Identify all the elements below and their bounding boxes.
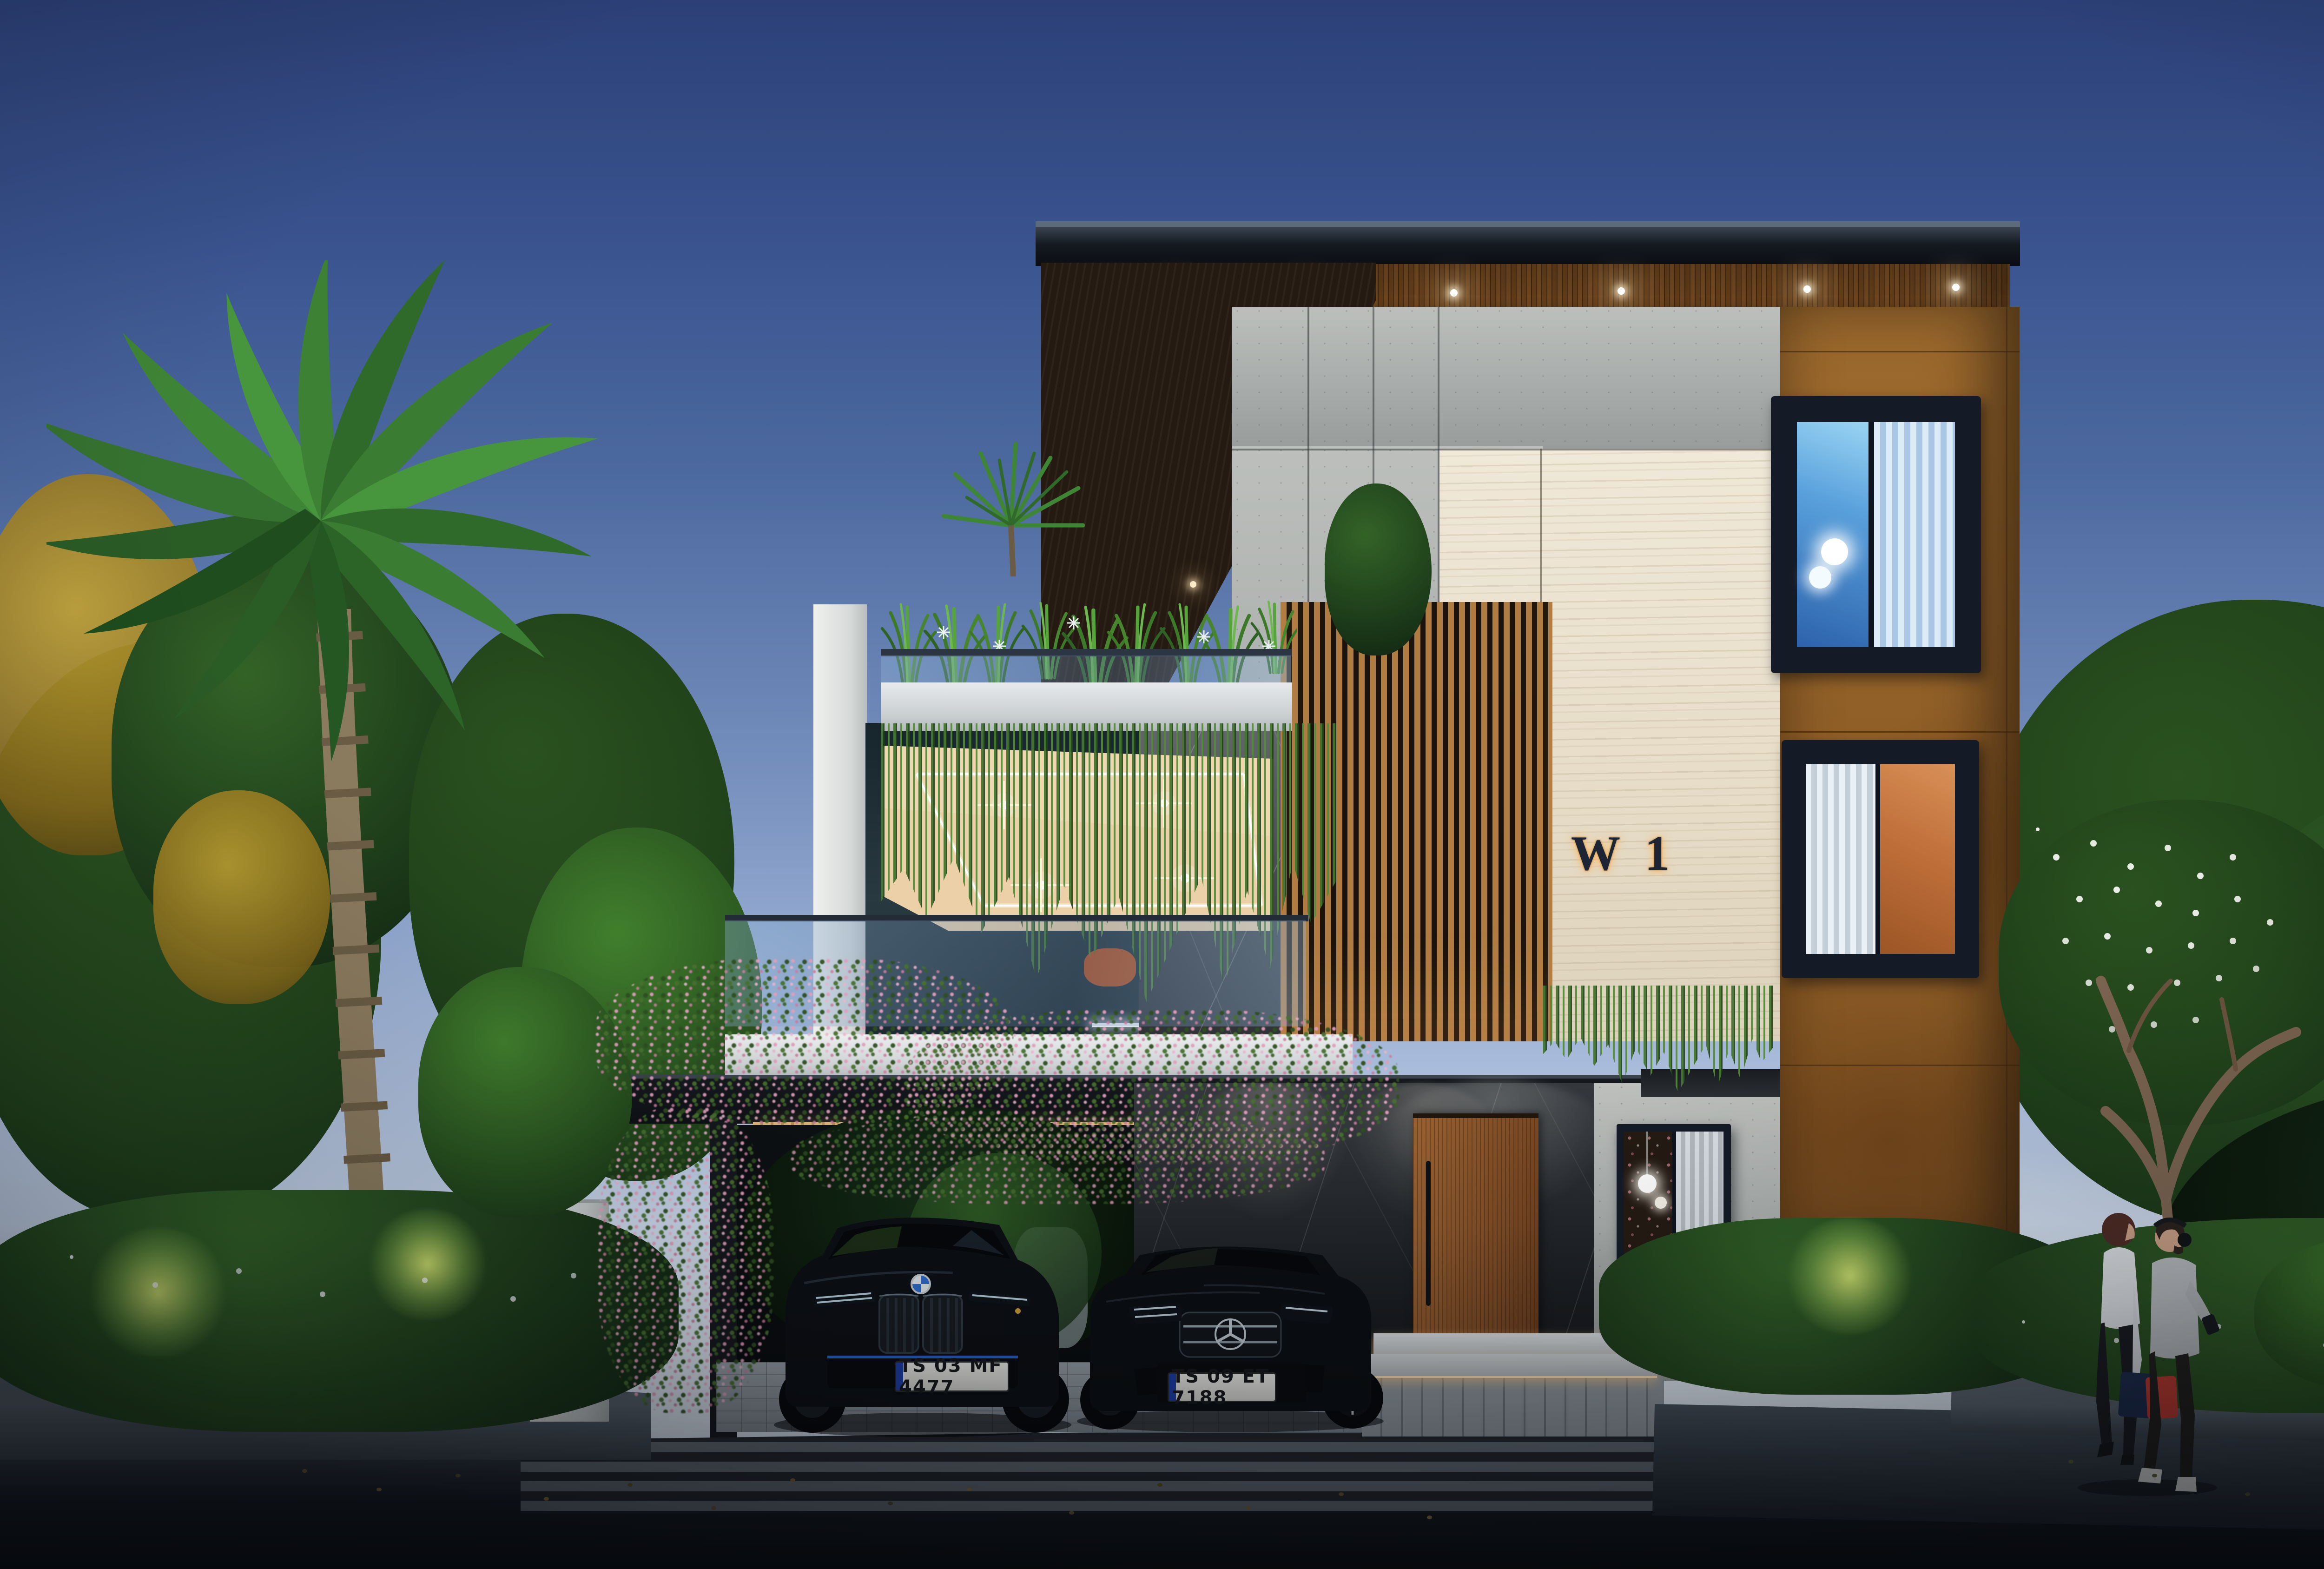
corten-seam: [2006, 307, 2007, 1283]
soffit-downlight: [1618, 287, 1625, 295]
slab-shadow-band: [1641, 1069, 1780, 1097]
pendant-light-orb: [1821, 538, 1848, 565]
climbing-flower-vine: [597, 1106, 774, 1413]
window-mullion: [1875, 764, 1880, 954]
pendant-cord: [1646, 1132, 1648, 1176]
house-number-sign: W 1: [1571, 825, 1757, 882]
garden-uplight-glow: [367, 1209, 488, 1320]
third-floor-window: [1771, 396, 1981, 673]
globe-pendant-light: [1655, 1197, 1667, 1209]
soffit-downlight: [1450, 289, 1458, 297]
entrance-walkway: [1362, 1371, 1664, 1437]
spider-lily-flowers: [70, 1255, 73, 1259]
suv-plate-number: TS 03 MF 4477: [899, 1355, 1010, 1398]
left-bright-shrub: [418, 967, 632, 1218]
corten-seam: [1780, 351, 2020, 352]
window-curtain: [1874, 422, 1955, 647]
globe-pendant-light: [1638, 1174, 1657, 1193]
pendant-light-orb: [1809, 566, 1831, 589]
pedestrian-couple: [2064, 1183, 2226, 1504]
fluted-wood-entry-door: [1413, 1113, 1538, 1347]
sedan-plate-number: TS 09 ET 7188: [1172, 1366, 1278, 1409]
hanging-flower-fringe: [790, 1116, 1325, 1204]
corten-seam: [1780, 1065, 2020, 1066]
corten-seam: [1780, 731, 2020, 733]
frangipani-white-flowers: [2036, 828, 2040, 831]
window-glass-warm-interior: [1880, 764, 1955, 954]
soffit-downlight: [1803, 285, 1811, 293]
rooftop-small-palm: [911, 409, 1111, 586]
fallen-leaves: [302, 1469, 307, 1473]
concrete-panel-band: [1232, 307, 1780, 451]
rooftop-ficus-plant: [1325, 483, 1432, 655]
second-floor-window: [1782, 740, 1979, 978]
architectural-render-scene: W 1: [0, 0, 2324, 1569]
roof-fascia: [1036, 227, 2020, 266]
fallen-leaves: [2068, 1460, 2073, 1463]
spider-lily-flowers: [2022, 1320, 2025, 1324]
suv-license-plate: TS 03 MF 4477: [895, 1361, 1009, 1392]
panel-seam: [1232, 449, 1780, 450]
soffit-downlight: [1952, 284, 1960, 291]
window-curtain: [1806, 764, 1875, 954]
sedan-license-plate: TS 09 ET 7188: [1168, 1372, 1276, 1402]
garden-uplight-glow: [88, 1227, 228, 1357]
man-walking: [2138, 1219, 2220, 1492]
black-suv: [758, 1199, 1088, 1439]
door-handle: [1426, 1161, 1431, 1306]
entry-step: [1373, 1333, 1634, 1356]
window-glass-blue-interior: [1797, 422, 1868, 647]
bmw-roundel-icon: [911, 1275, 930, 1293]
garden-uplight-glow: [1785, 1218, 1915, 1334]
window-mullion: [1868, 422, 1874, 647]
